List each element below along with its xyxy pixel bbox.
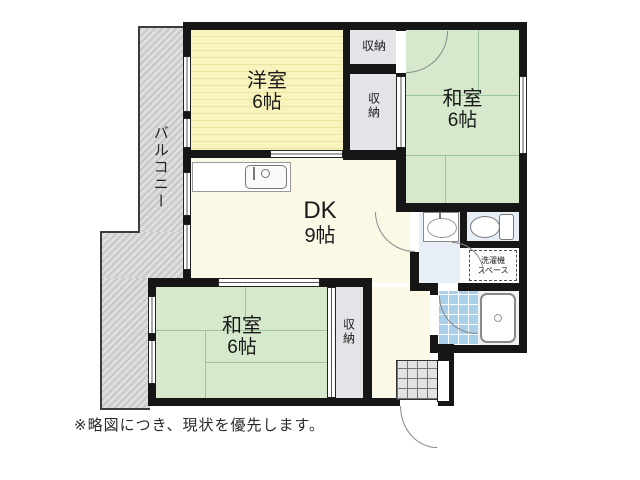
disclaimer-note: ※略図につき、現状を優先します。 bbox=[74, 418, 325, 435]
bathtub-drain-icon bbox=[494, 314, 502, 322]
closet-mid-label: 収納 bbox=[366, 92, 379, 120]
entrance-door-leaf bbox=[437, 360, 450, 402]
wall-right bbox=[519, 22, 527, 353]
laundry-label-line1: 洗濯機 bbox=[481, 256, 505, 266]
tatami-ne-size: 6帖 bbox=[406, 110, 519, 131]
washbasin-bowl-icon bbox=[427, 218, 457, 238]
balcony-label: バルコニー bbox=[151, 125, 168, 210]
toilet-tank-icon bbox=[499, 214, 514, 240]
tatami-line bbox=[205, 362, 328, 363]
wall-western-bottom bbox=[183, 150, 270, 158]
sliding-door bbox=[327, 287, 336, 398]
tatami-ne-label: 和室 6帖 bbox=[406, 88, 519, 132]
window bbox=[519, 76, 527, 154]
sliding-door bbox=[396, 76, 406, 148]
western-room-name: 洋室 bbox=[191, 70, 343, 92]
door-opening bbox=[430, 295, 438, 335]
western-room-label: 洋室 6帖 bbox=[191, 70, 343, 114]
wall-laundry-bottom bbox=[458, 283, 527, 291]
tatami-ne-name: 和室 bbox=[406, 88, 519, 110]
wall-top bbox=[183, 22, 527, 30]
sliding-door bbox=[218, 278, 320, 287]
window bbox=[183, 56, 191, 112]
tatami-sw-size: 6帖 bbox=[156, 337, 328, 358]
western-room-size: 6帖 bbox=[191, 92, 343, 113]
closet-sw-label: 収納 bbox=[341, 318, 354, 346]
window bbox=[183, 172, 191, 216]
kitchen-tap-icon bbox=[253, 167, 255, 180]
sliding-door bbox=[270, 150, 343, 158]
closet-top-label: 収納 bbox=[350, 40, 398, 53]
balcony-edge-line bbox=[100, 231, 140, 233]
tatami-line bbox=[406, 155, 519, 156]
tatami-sw-name: 和室 bbox=[156, 315, 328, 337]
balcony-hatch-lower bbox=[100, 278, 150, 410]
genkan-tile bbox=[396, 360, 438, 400]
window bbox=[148, 296, 156, 334]
floorplan: 洗濯機 スペース 洋室 6帖 和室 6帖 和室 6帖 DK 9帖 収納 収納 収… bbox=[0, 0, 640, 480]
window bbox=[183, 118, 191, 148]
dk-label: DK 9帖 bbox=[255, 198, 385, 247]
kitchen-drain-icon bbox=[261, 169, 270, 178]
window bbox=[183, 224, 191, 270]
toilet-bowl-icon bbox=[470, 216, 500, 238]
washbasin-tap-icon bbox=[439, 212, 441, 219]
wall-closet-sw-right bbox=[363, 278, 372, 406]
window bbox=[148, 340, 156, 384]
dk-name: DK bbox=[255, 198, 385, 225]
tatami-line bbox=[445, 155, 446, 203]
wall-closet-left bbox=[343, 22, 350, 158]
tatami-sw-label: 和室 6帖 bbox=[156, 315, 328, 359]
dk-size: 9帖 bbox=[255, 225, 385, 247]
balcony-hatch-mid bbox=[100, 232, 185, 278]
tatami-line bbox=[478, 30, 479, 95]
door-arc-entrance bbox=[400, 406, 437, 448]
